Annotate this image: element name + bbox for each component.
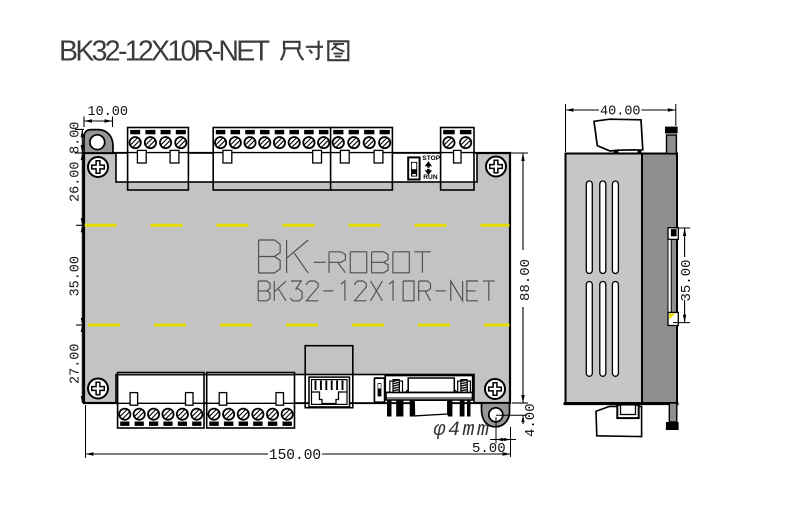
svg-text:RUN: RUN [423, 174, 438, 181]
svg-text:88.00: 88.00 [518, 259, 534, 301]
svg-text:150.00: 150.00 [269, 448, 321, 464]
svg-text:35.00: 35.00 [69, 256, 84, 297]
svg-text:40.00: 40.00 [600, 105, 641, 120]
svg-text:27.00: 27.00 [69, 343, 84, 384]
svg-text:8.00: 8.00 [69, 122, 84, 154]
svg-text:5.00: 5.00 [472, 441, 506, 457]
svg-text:10.00: 10.00 [88, 105, 129, 120]
svg-text:35.00: 35.00 [679, 259, 695, 301]
svg-text:φ4mm: φ4mm [434, 419, 492, 442]
svg-text:26.00: 26.00 [69, 161, 84, 202]
svg-text:STOP: STOP [422, 155, 440, 162]
svg-text:BK32-12X10R-NET: BK32-12X10R-NET [59, 36, 270, 68]
svg-text:4.00: 4.00 [523, 403, 539, 437]
